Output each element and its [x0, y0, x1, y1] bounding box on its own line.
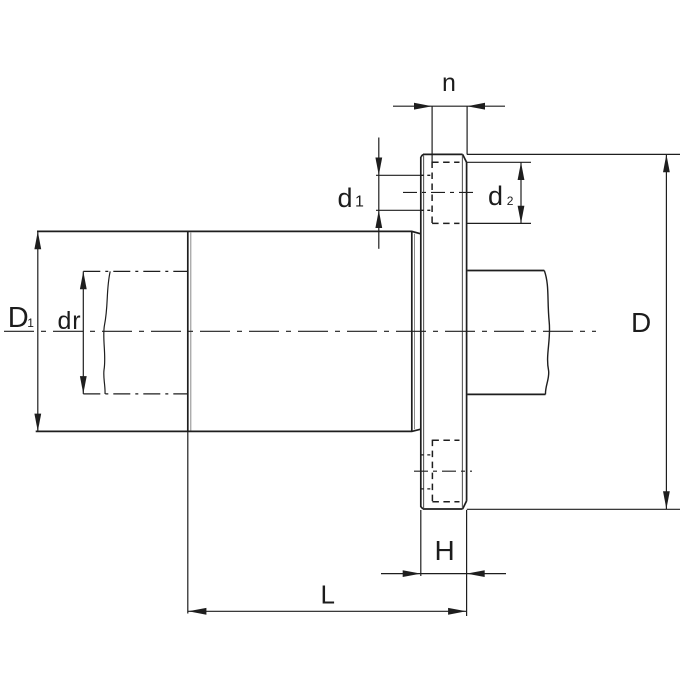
svg-text:d: d [338, 183, 353, 213]
svg-text:1: 1 [355, 194, 364, 211]
svg-text:D: D [8, 302, 29, 334]
svg-text:L: L [321, 580, 335, 610]
svg-text:n: n [442, 69, 456, 97]
svg-text:D: D [631, 307, 651, 338]
svg-text:1: 1 [27, 316, 34, 330]
svg-text:H: H [435, 535, 455, 566]
svg-text:2: 2 [507, 194, 514, 208]
svg-text:dr: dr [58, 307, 82, 335]
svg-text:d: d [488, 181, 503, 211]
